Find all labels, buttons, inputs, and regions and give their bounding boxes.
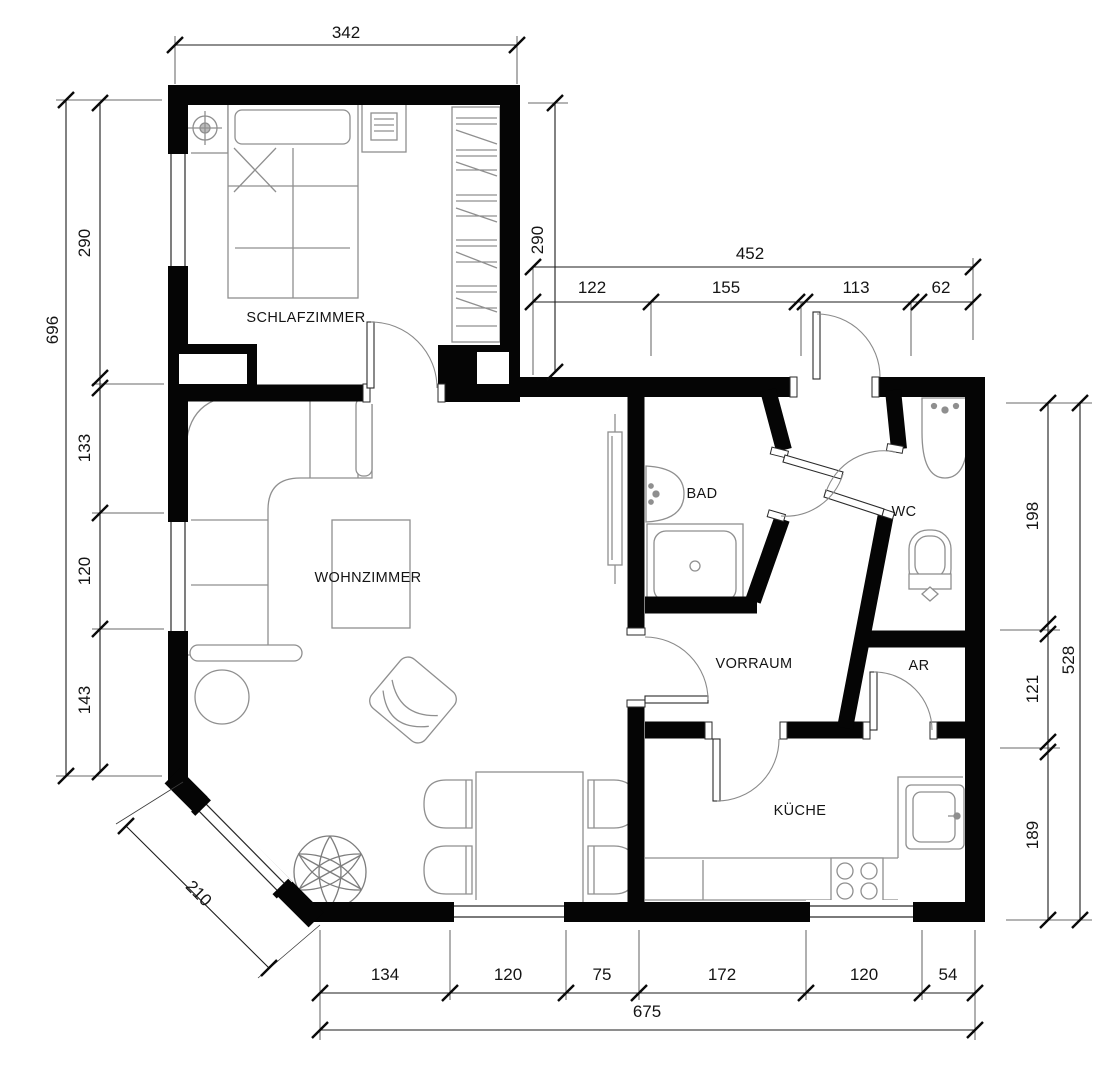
room-label-vorraum: VORRAUM [716,656,793,672]
dim-top-342: 342 [332,23,360,42]
dim-bottom-120b: 120 [850,965,878,984]
kitchen-counter [645,777,964,902]
floor-plan-page: 342 696 290 133 120 143 210 290 452 122 … [0,0,1114,1080]
toilet [909,530,951,601]
dim-right-189: 189 [1023,821,1042,849]
dim-left-133: 133 [75,434,94,462]
dim-bottom-675: 675 [633,1002,661,1021]
dim-diagonal-210: 210 [182,877,215,910]
window-bedroom-left [165,148,191,272]
dim-right-528: 528 [1059,646,1078,674]
living-door-leaf [645,696,708,703]
kitchen-sink [906,785,964,849]
dim-bottom-54: 54 [939,965,958,984]
bedroom-door-leaf [367,322,374,388]
dim-left-143: 143 [75,686,94,714]
tv-sideboard [608,414,622,584]
storage-door-leaf [870,672,877,730]
dim-bottom-134: 134 [371,965,399,984]
dim-upper-452: 452 [736,244,764,263]
dim-left-696: 696 [43,316,62,344]
bathroom-sink [646,466,684,522]
floor-plan-drawing: 342 696 290 133 120 143 210 290 452 122 … [0,0,1114,1080]
dining-chair [424,780,472,828]
window-dining-bottom [448,900,570,924]
window-living-left [165,516,191,637]
wc-sink [922,398,968,478]
nightstand-right [362,104,406,152]
room-label-ar: AR [909,658,930,674]
room-label-wohnzimmer: WOHNZIMMER [314,570,421,586]
dining-chair [424,846,472,894]
window-kitchen-bottom [804,900,919,924]
dim-upper-113: 113 [842,278,869,297]
entrance-door-leaf [813,312,820,379]
kitchen-door-leaf [713,739,720,801]
dim-left-120: 120 [75,557,94,585]
dim-upper-122: 122 [578,278,606,297]
dim-upper-62: 62 [932,278,951,297]
dim-bottom-172: 172 [708,965,736,984]
dim-right-121: 121 [1023,675,1042,703]
dim-left-290: 290 [75,229,94,257]
dim-upper-155: 155 [712,278,740,297]
dim-closet-290: 290 [528,226,547,254]
dining-table-set [424,772,636,908]
armchair [366,653,461,747]
double-bed [228,104,358,298]
room-label-schlafzimmer: SCHLAFZIMMER [246,310,365,326]
shower-tub [647,524,743,608]
wardrobe-closet [452,107,500,342]
window-diagonal [190,795,293,899]
dim-right-198: 198 [1023,502,1042,530]
nightstand-left [182,104,228,153]
room-label-kueche: KÜCHE [774,801,827,819]
room-label-wc: WC [892,504,917,520]
room-label-bad: BAD [686,486,717,502]
stove [831,858,883,902]
side-table-round [195,670,249,724]
dim-bottom-120a: 120 [494,965,522,984]
dim-bottom-75: 75 [593,965,612,984]
